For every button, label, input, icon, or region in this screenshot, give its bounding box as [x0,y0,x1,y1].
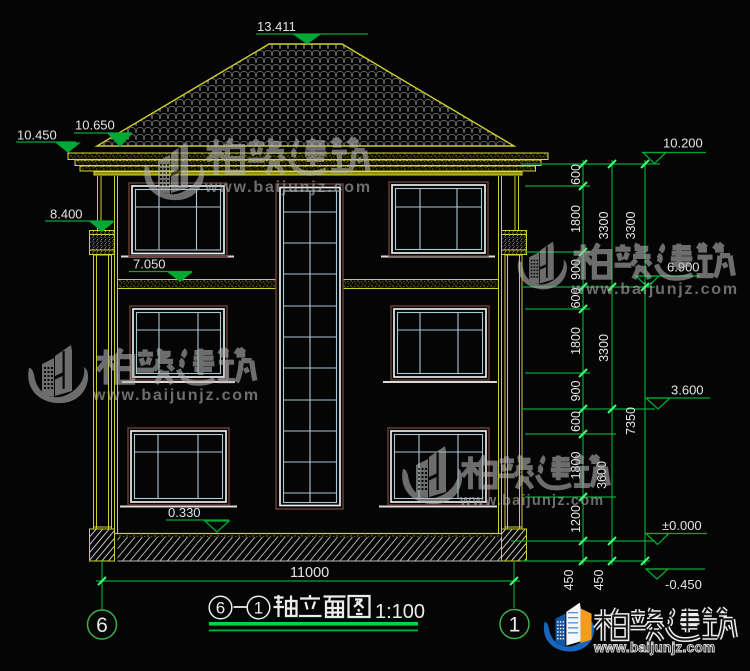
svg-text:600: 600 [569,411,583,432]
svg-text:6: 6 [216,599,225,618]
svg-text:3300: 3300 [597,212,611,240]
svg-text:www.baijunjz.com: www.baijunjz.com [593,640,715,655]
svg-text:www.baijunjz.com: www.baijunjz.com [571,281,739,298]
svg-text:3.600: 3.600 [671,383,704,398]
svg-text:10.450: 10.450 [17,128,57,143]
svg-text:7350: 7350 [624,407,638,435]
svg-text:450: 450 [592,570,606,591]
svg-text:±0.000: ±0.000 [662,518,702,533]
svg-text:1800: 1800 [569,327,583,355]
svg-text:900: 900 [569,381,583,402]
svg-text:7.050: 7.050 [133,257,166,272]
svg-text:www.baijunjz.com: www.baijunjz.com [459,493,604,509]
svg-text:www.baijunjz.com: www.baijunjz.com [92,387,260,404]
svg-text:3300: 3300 [597,334,611,362]
svg-text:10.650: 10.650 [75,118,115,133]
svg-text:1: 1 [254,599,263,618]
svg-text:8.400: 8.400 [50,207,83,222]
svg-text:0.330: 0.330 [168,505,201,520]
svg-text:13.411: 13.411 [257,19,296,34]
svg-text:3300: 3300 [624,212,638,240]
svg-text:-0.450: -0.450 [665,577,702,592]
svg-text:600: 600 [569,164,583,185]
svg-text:1200: 1200 [569,505,583,533]
svg-text:1:100: 1:100 [375,601,425,623]
svg-text:1: 1 [509,614,521,637]
svg-text:www.baijunjz.com: www.baijunjz.com [204,179,372,196]
svg-text:10.200: 10.200 [663,136,703,151]
svg-text:11000: 11000 [290,565,329,581]
svg-text:1800: 1800 [569,205,583,233]
svg-text:450: 450 [562,570,576,591]
svg-text:6: 6 [96,614,108,637]
